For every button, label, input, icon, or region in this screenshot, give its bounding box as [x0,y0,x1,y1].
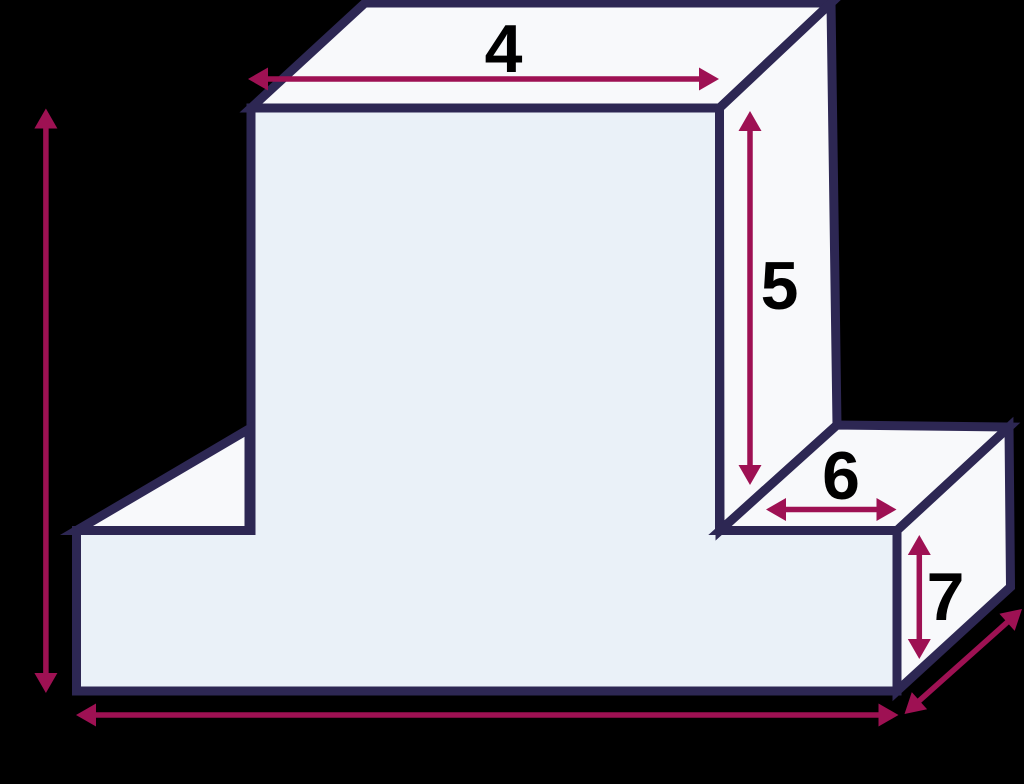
svg-text:4: 4 [485,11,523,87]
svg-text:7: 7 [927,559,965,635]
svg-text:6: 6 [822,438,860,514]
svg-text:5: 5 [761,248,799,324]
